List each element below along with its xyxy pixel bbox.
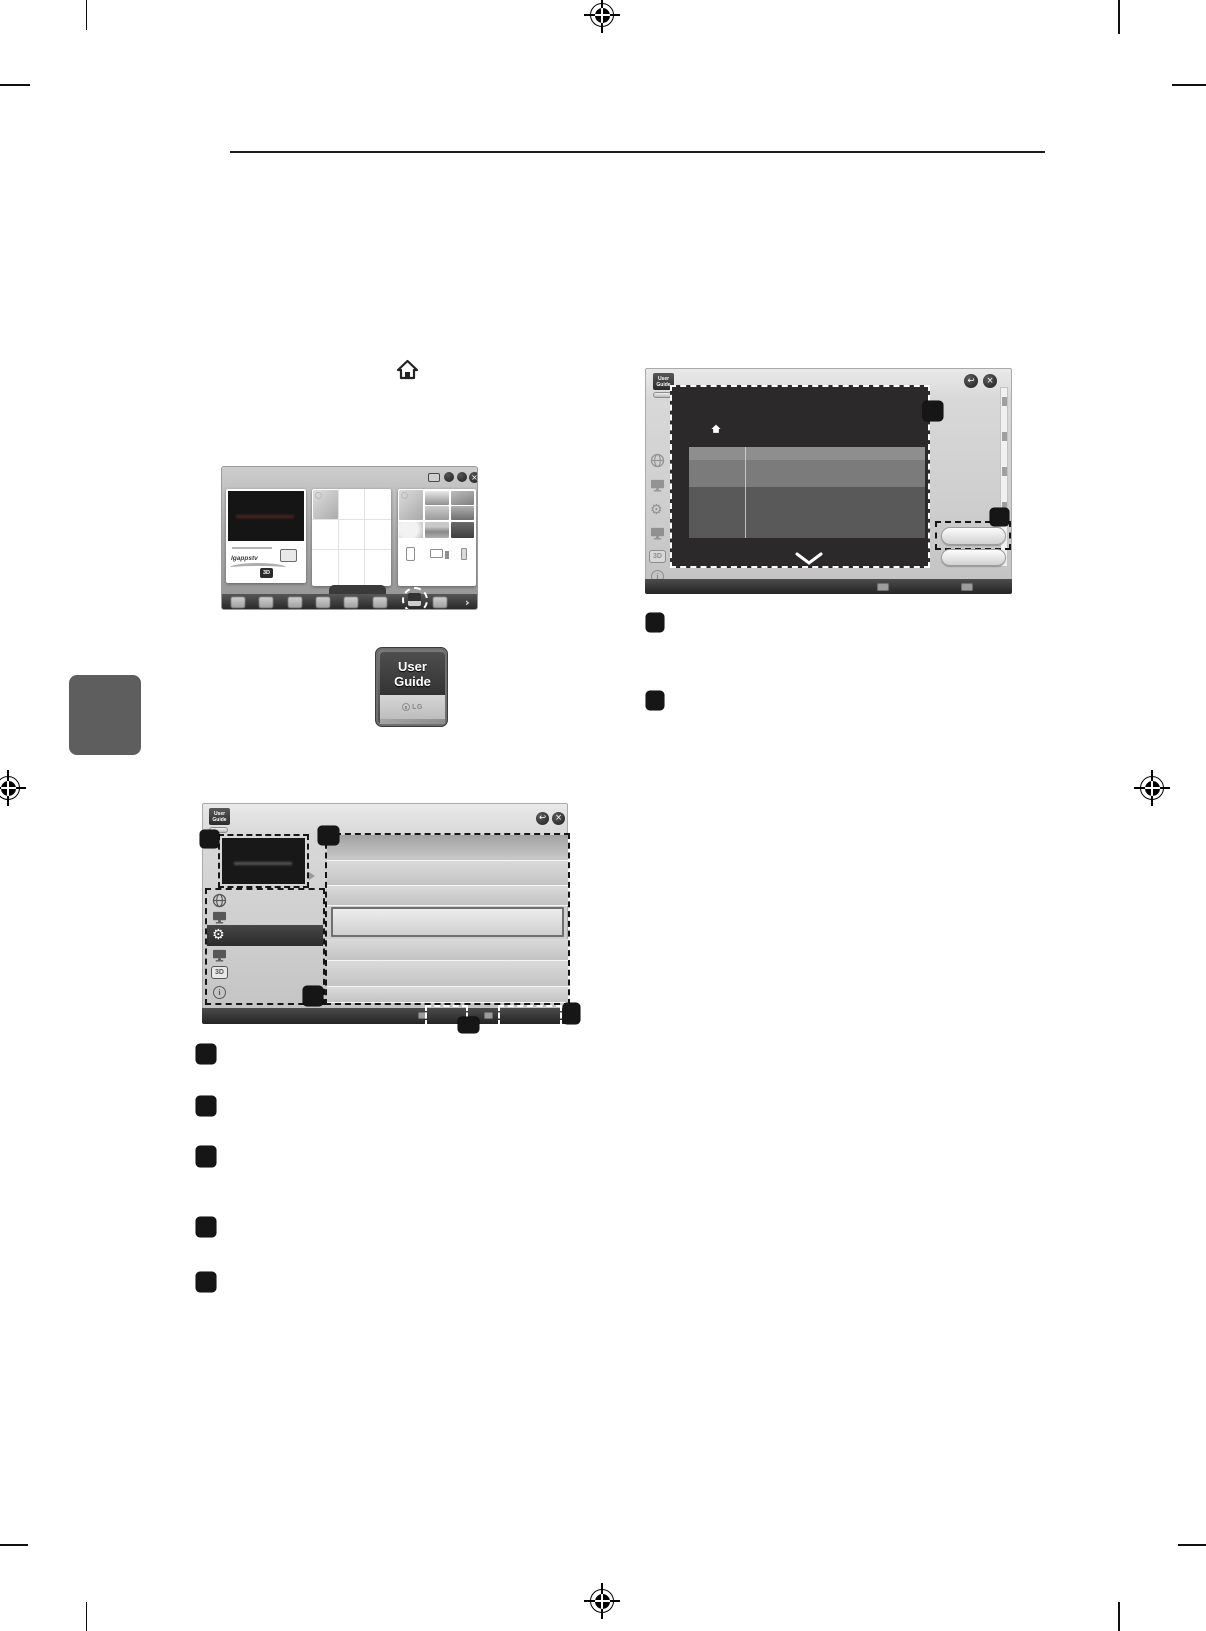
thumb-sea <box>425 506 449 520</box>
media-card[interactable] <box>398 489 476 586</box>
settings-row[interactable] <box>327 886 568 906</box>
remote-hint-icon <box>961 583 973 591</box>
callout-marker-3 <box>303 986 323 1006</box>
home-icon <box>396 359 419 381</box>
monitor-icon[interactable] <box>212 911 227 924</box>
list-callout-2 <box>196 1096 216 1116</box>
crop-mark-right <box>1172 84 1206 86</box>
list-callout-3 <box>196 1146 216 1167</box>
list-callout-1 <box>196 1044 216 1064</box>
home-icon <box>711 424 721 434</box>
settings-row[interactable] <box>327 987 568 1003</box>
thumb-night <box>451 522 474 538</box>
user-guide-badge: User Guide <box>209 808 230 825</box>
gear-icon: ⚙ <box>212 927 225 943</box>
callout-marker-1 <box>923 401 943 421</box>
selection-ring <box>401 492 408 499</box>
app-icon[interactable] <box>373 597 387 608</box>
list-callout-1 <box>646 613 664 632</box>
crop-mark-bottom-left-h <box>0 1544 28 1546</box>
app-icon[interactable] <box>433 597 447 608</box>
live-tv-card[interactable]: lgappstv 3D <box>226 489 306 583</box>
crop-mark-bottom-right-v <box>1118 1602 1120 1631</box>
close-button[interactable]: × <box>552 812 565 825</box>
tv-preview <box>228 491 304 541</box>
callout-marker-4 <box>458 1017 479 1033</box>
settings-row[interactable] <box>327 861 568 886</box>
banner-text: lgappstv <box>231 555 258 562</box>
thumb-city <box>425 522 449 538</box>
app-icon-foot <box>380 719 445 724</box>
app-grid-card[interactable] <box>312 489 391 586</box>
monitor-icon[interactable] <box>212 949 227 962</box>
manual-page: × lgappstv 3D <box>0 0 1206 1631</box>
back-button[interactable]: ↩ <box>964 374 978 388</box>
promo-banner: lgappstv 3D <box>228 543 304 581</box>
registration-mark-top <box>584 0 620 33</box>
close-button[interactable]: × <box>983 374 997 388</box>
tv-home-screenshot: × lgappstv 3D <box>221 466 478 610</box>
pc-tower-icon <box>445 551 449 559</box>
phone-icon <box>406 547 415 561</box>
crop-mark-bottom-right-h <box>1178 1544 1206 1546</box>
banner-wave <box>230 563 286 572</box>
3d-icon[interactable]: 3D <box>211 966 228 979</box>
info-icon[interactable]: i <box>213 986 226 999</box>
lg-logo: LG <box>380 695 445 719</box>
settings-row[interactable] <box>327 939 568 961</box>
gear-icon: ⚙ <box>650 502 663 518</box>
chevron-down-icon[interactable] <box>795 552 823 565</box>
settings-row[interactable] <box>327 961 568 987</box>
app-icon[interactable] <box>259 597 273 608</box>
monitor-icon <box>650 527 665 540</box>
app-icon[interactable] <box>344 597 358 608</box>
3d-icon: 3D <box>649 550 666 563</box>
app-icon-title: User Guide <box>380 652 445 695</box>
scrollbar-tick <box>1002 467 1007 476</box>
crop-mark-top-left <box>86 0 88 30</box>
banner-tv-graphic <box>280 549 297 562</box>
scrollbar-tick <box>1002 397 1007 406</box>
thumb-sky <box>425 491 449 505</box>
registration-mark-bottom <box>584 1583 620 1619</box>
globe-icon <box>650 453 665 468</box>
edit-icon[interactable] <box>444 472 454 482</box>
crop-mark-bottom-left-v <box>86 1602 88 1631</box>
user-guide-window-screenshot: User Guide ↩ × ⚙ 3D <box>202 803 568 1023</box>
user-guide-app-mini[interactable] <box>408 593 421 606</box>
globe-icon[interactable] <box>212 893 227 908</box>
tv-preview-glow <box>236 515 294 518</box>
guide-table-row[interactable] <box>689 487 925 538</box>
app-icon[interactable] <box>288 597 302 608</box>
scrollbar-tick <box>1002 432 1007 441</box>
list-callout-2 <box>646 691 664 710</box>
thumb-bird <box>451 491 474 505</box>
usb-icon <box>461 548 467 560</box>
selection-ring <box>315 492 322 499</box>
guide-table-row[interactable] <box>689 460 925 487</box>
list-callout-5 <box>196 1272 216 1292</box>
pc-icon <box>430 549 443 558</box>
table-divider <box>745 447 746 538</box>
settings-row-selected[interactable] <box>331 907 564 937</box>
ok-button[interactable] <box>941 527 1006 545</box>
window-bottom-bar <box>645 579 1012 594</box>
monitor-icon <box>650 479 665 492</box>
remote-hint-icon <box>484 1012 493 1019</box>
settings-icon[interactable] <box>457 472 467 482</box>
guide-table-header <box>689 447 925 460</box>
cancel-button[interactable] <box>941 549 1006 566</box>
registration-mark-left <box>0 770 26 806</box>
crop-mark-left <box>0 84 30 86</box>
app-icon[interactable] <box>316 597 330 608</box>
thumb-dog <box>399 522 423 538</box>
launcher-more-arrow[interactable]: › <box>465 596 470 609</box>
thumb-hill <box>451 506 474 520</box>
video-preview <box>222 838 305 884</box>
list-callout-4 <box>196 1217 216 1237</box>
settings-row <box>327 835 568 861</box>
remote-hint-icon <box>877 583 889 591</box>
banner-rule <box>232 547 272 549</box>
banner-3d-badge: 3D <box>260 568 273 578</box>
crop-mark-top-right <box>1118 0 1120 34</box>
user-guide-app-icon[interactable]: User Guide LG <box>375 647 448 727</box>
callout-marker-2 <box>318 826 339 845</box>
callout-marker-2 <box>990 508 1009 526</box>
section-divider <box>230 151 1045 153</box>
close-icon[interactable]: × <box>469 472 478 483</box>
callout-marker-1 <box>200 830 219 848</box>
registration-mark-right <box>1134 770 1170 806</box>
play-arrow-icon <box>309 872 315 880</box>
login-icon[interactable] <box>428 473 440 482</box>
app-icon[interactable] <box>231 597 245 608</box>
callout-marker-5 <box>563 1003 580 1024</box>
lg-face-icon <box>402 703 410 711</box>
chapter-tab <box>69 675 141 755</box>
bottom-control-outline-2 <box>498 1005 562 1026</box>
back-button[interactable]: ↩ <box>536 812 549 825</box>
guide-overlay-panel <box>670 385 930 568</box>
